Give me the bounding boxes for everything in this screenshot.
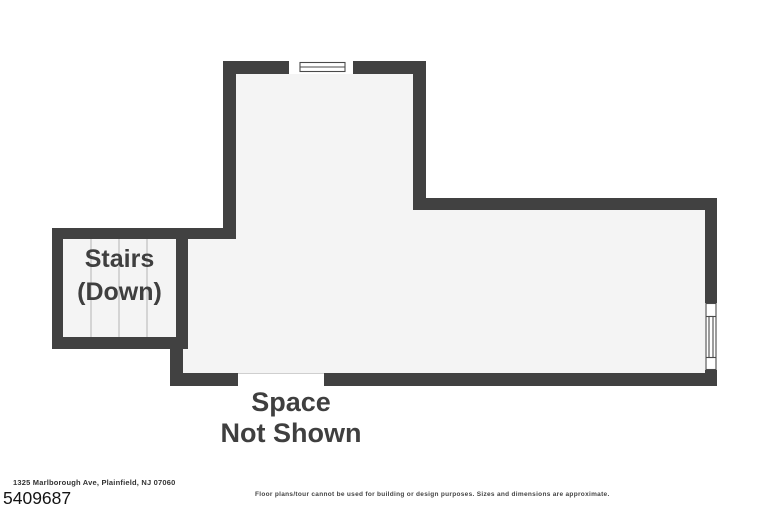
listing-id: 5409687 [3,488,71,509]
wall-opening [238,373,324,386]
stairs-room-label: Stairs (Down) [63,243,176,309]
space-label-line1: Space [191,387,391,418]
property-address: 1325 Marlborough Ave, Plainfield, NJ 070… [13,478,175,487]
floorplan-page: Stairs (Down) Space Not Shown 1325 Marlb… [0,0,768,512]
window-right-icon [705,303,717,370]
space-not-shown-label: Space Not Shown [191,387,391,449]
disclaimer-text: Floor plans/tour cannot be used for buil… [255,491,610,498]
space-label-line2: Not Shown [191,418,391,449]
stairs-label-line1: Stairs [63,243,176,276]
stairs-label-line2: (Down) [63,276,176,309]
main-room-floor [183,74,705,373]
window-top-icon [289,61,353,74]
